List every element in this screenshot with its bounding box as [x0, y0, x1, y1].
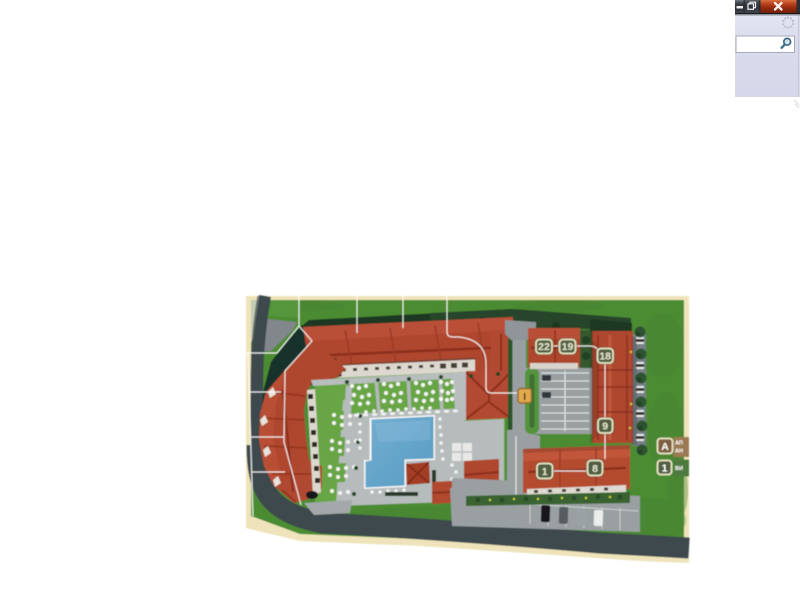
svg-text:АН: АН — [675, 449, 683, 455]
svg-text:8: 8 — [592, 463, 598, 475]
svg-text:АП: АП — [675, 441, 683, 447]
svg-text:1: 1 — [662, 463, 668, 475]
svg-text:I: I — [523, 391, 526, 403]
svg-text:19: 19 — [562, 341, 574, 353]
svg-text:18: 18 — [599, 351, 611, 363]
svg-text:1: 1 — [542, 466, 548, 478]
svg-text:22: 22 — [538, 341, 550, 353]
svg-text:A: A — [661, 441, 669, 453]
svg-text:9: 9 — [602, 421, 608, 433]
svg-text:ВИ: ВИ — [675, 466, 683, 472]
